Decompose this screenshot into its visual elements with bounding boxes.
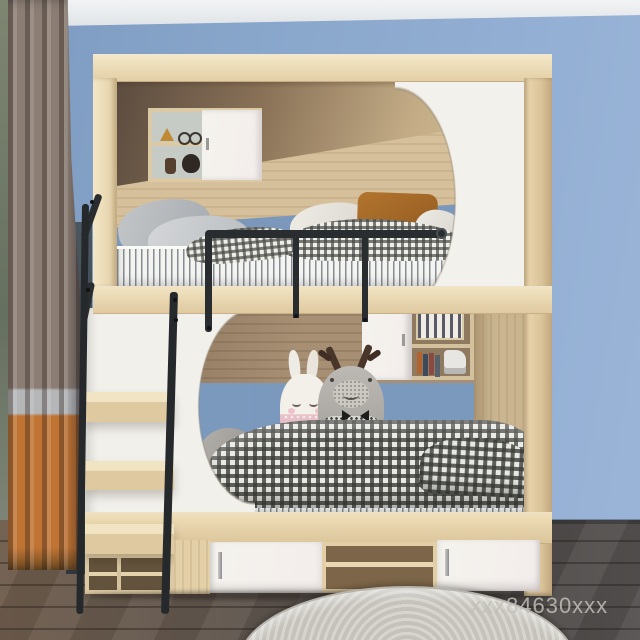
ladder-bolt-2 <box>86 288 90 292</box>
toy-blocks <box>417 352 422 374</box>
bedroom-photo: xxx84630xxx <box>0 0 640 640</box>
bunny-cheek-left <box>288 408 295 414</box>
guardrail-foot-bolt-1 <box>294 314 298 318</box>
wood-step-middle <box>85 461 174 490</box>
glasses-icon-2 <box>189 132 202 145</box>
ladder-bolt-3 <box>173 298 177 302</box>
ladder-bolt-1 <box>90 200 94 204</box>
bunny-eye-left <box>292 400 301 407</box>
guardrail-foot-bolt-3 <box>207 326 211 330</box>
base-drawer-right-handle <box>445 549 449 576</box>
curtain <box>8 0 80 570</box>
wall-floor-shadow <box>552 519 640 524</box>
lower-shelf-door-handle <box>402 334 405 346</box>
bed-middle-band <box>93 286 552 314</box>
wood-step-top <box>85 392 174 422</box>
upper-white-panel <box>395 80 524 288</box>
deer-eye-right <box>368 378 372 382</box>
base-drawer-left-handle <box>218 552 222 579</box>
base-wood-filler <box>174 540 210 594</box>
base-drawer-right <box>437 540 540 591</box>
toy-truck <box>444 350 466 374</box>
guardrail-foot-bolt-2 <box>363 318 367 322</box>
ladder-bolt-4 <box>174 318 178 322</box>
deer-eye-left <box>330 378 334 382</box>
small-teapot <box>182 154 200 173</box>
watermark-text: xxx84630xxx <box>470 593 608 619</box>
wood-step-bottom <box>85 524 174 554</box>
base-open-shelf-board <box>326 562 433 567</box>
bed-left-column <box>93 78 117 288</box>
shoe-rack-divider <box>117 558 121 590</box>
guardrail-bar <box>205 230 445 238</box>
bed-top-beam <box>93 54 552 82</box>
guardrail-post-left <box>205 232 212 332</box>
upper-shelf-door <box>202 110 262 180</box>
base-drawer-left <box>210 542 322 593</box>
upper-shelf-door-handle <box>206 138 209 150</box>
small-pot <box>165 158 176 174</box>
shoe-rack-shelf <box>89 572 170 576</box>
guardrail-post-mid-2 <box>362 236 368 322</box>
deer-smile <box>343 390 359 400</box>
bunny-eye-right <box>309 400 318 407</box>
guardrail-end-flange <box>436 228 447 239</box>
framed-picture <box>416 312 464 340</box>
lower-shelf-board <box>412 344 470 348</box>
toy-triangle <box>160 128 174 141</box>
guardrail-post-mid-1 <box>293 236 299 318</box>
